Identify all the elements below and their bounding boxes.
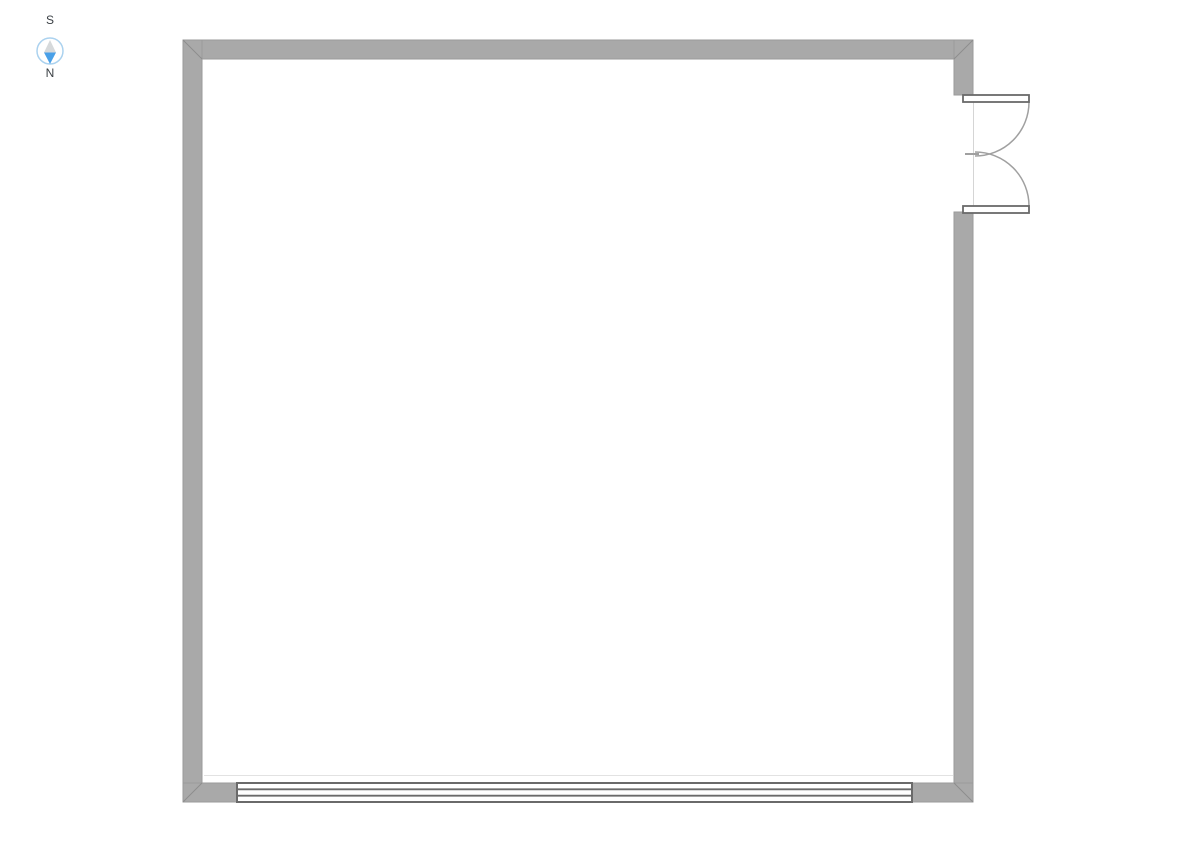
compass-south-label: S (46, 13, 54, 27)
door-leaf-top[interactable] (963, 95, 1029, 102)
wall-west[interactable] (183, 40, 202, 802)
door-swing-arc-bottom (975, 152, 1029, 206)
room-walls (183, 40, 973, 802)
sliding-window-icon[interactable] (204, 776, 953, 803)
compass-needle-north (44, 53, 56, 65)
compass-north-label: N (46, 66, 55, 80)
door-leaf-bottom[interactable] (963, 206, 1029, 213)
compass-icon[interactable]: S N (37, 13, 63, 80)
floorplan-canvas: S N (0, 0, 1191, 842)
wall-east-lower[interactable] (954, 212, 973, 783)
wall-south-left[interactable] (183, 783, 237, 802)
wall-east-upper[interactable] (954, 40, 973, 95)
compass-needle-tail (44, 40, 56, 53)
window-frame[interactable] (237, 783, 912, 802)
door-swing-arc-top (975, 102, 1029, 156)
floorplan-drawing: S N (0, 0, 1191, 842)
double-swing-door-icon[interactable] (963, 95, 1029, 213)
wall-north[interactable] (183, 40, 973, 59)
